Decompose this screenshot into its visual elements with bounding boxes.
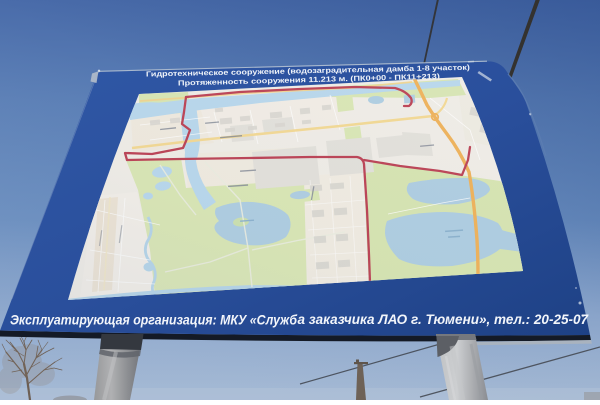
svg-text:Эксплуатирующая организация: М: Эксплуатирующая организация: МКУ «Служб bbox=[10, 313, 298, 328]
svg-text:а заказчика ЛАО г. Тюмени», те: а заказчика ЛАО г. Тюмени», тел.: 20-25-… bbox=[298, 312, 590, 327]
